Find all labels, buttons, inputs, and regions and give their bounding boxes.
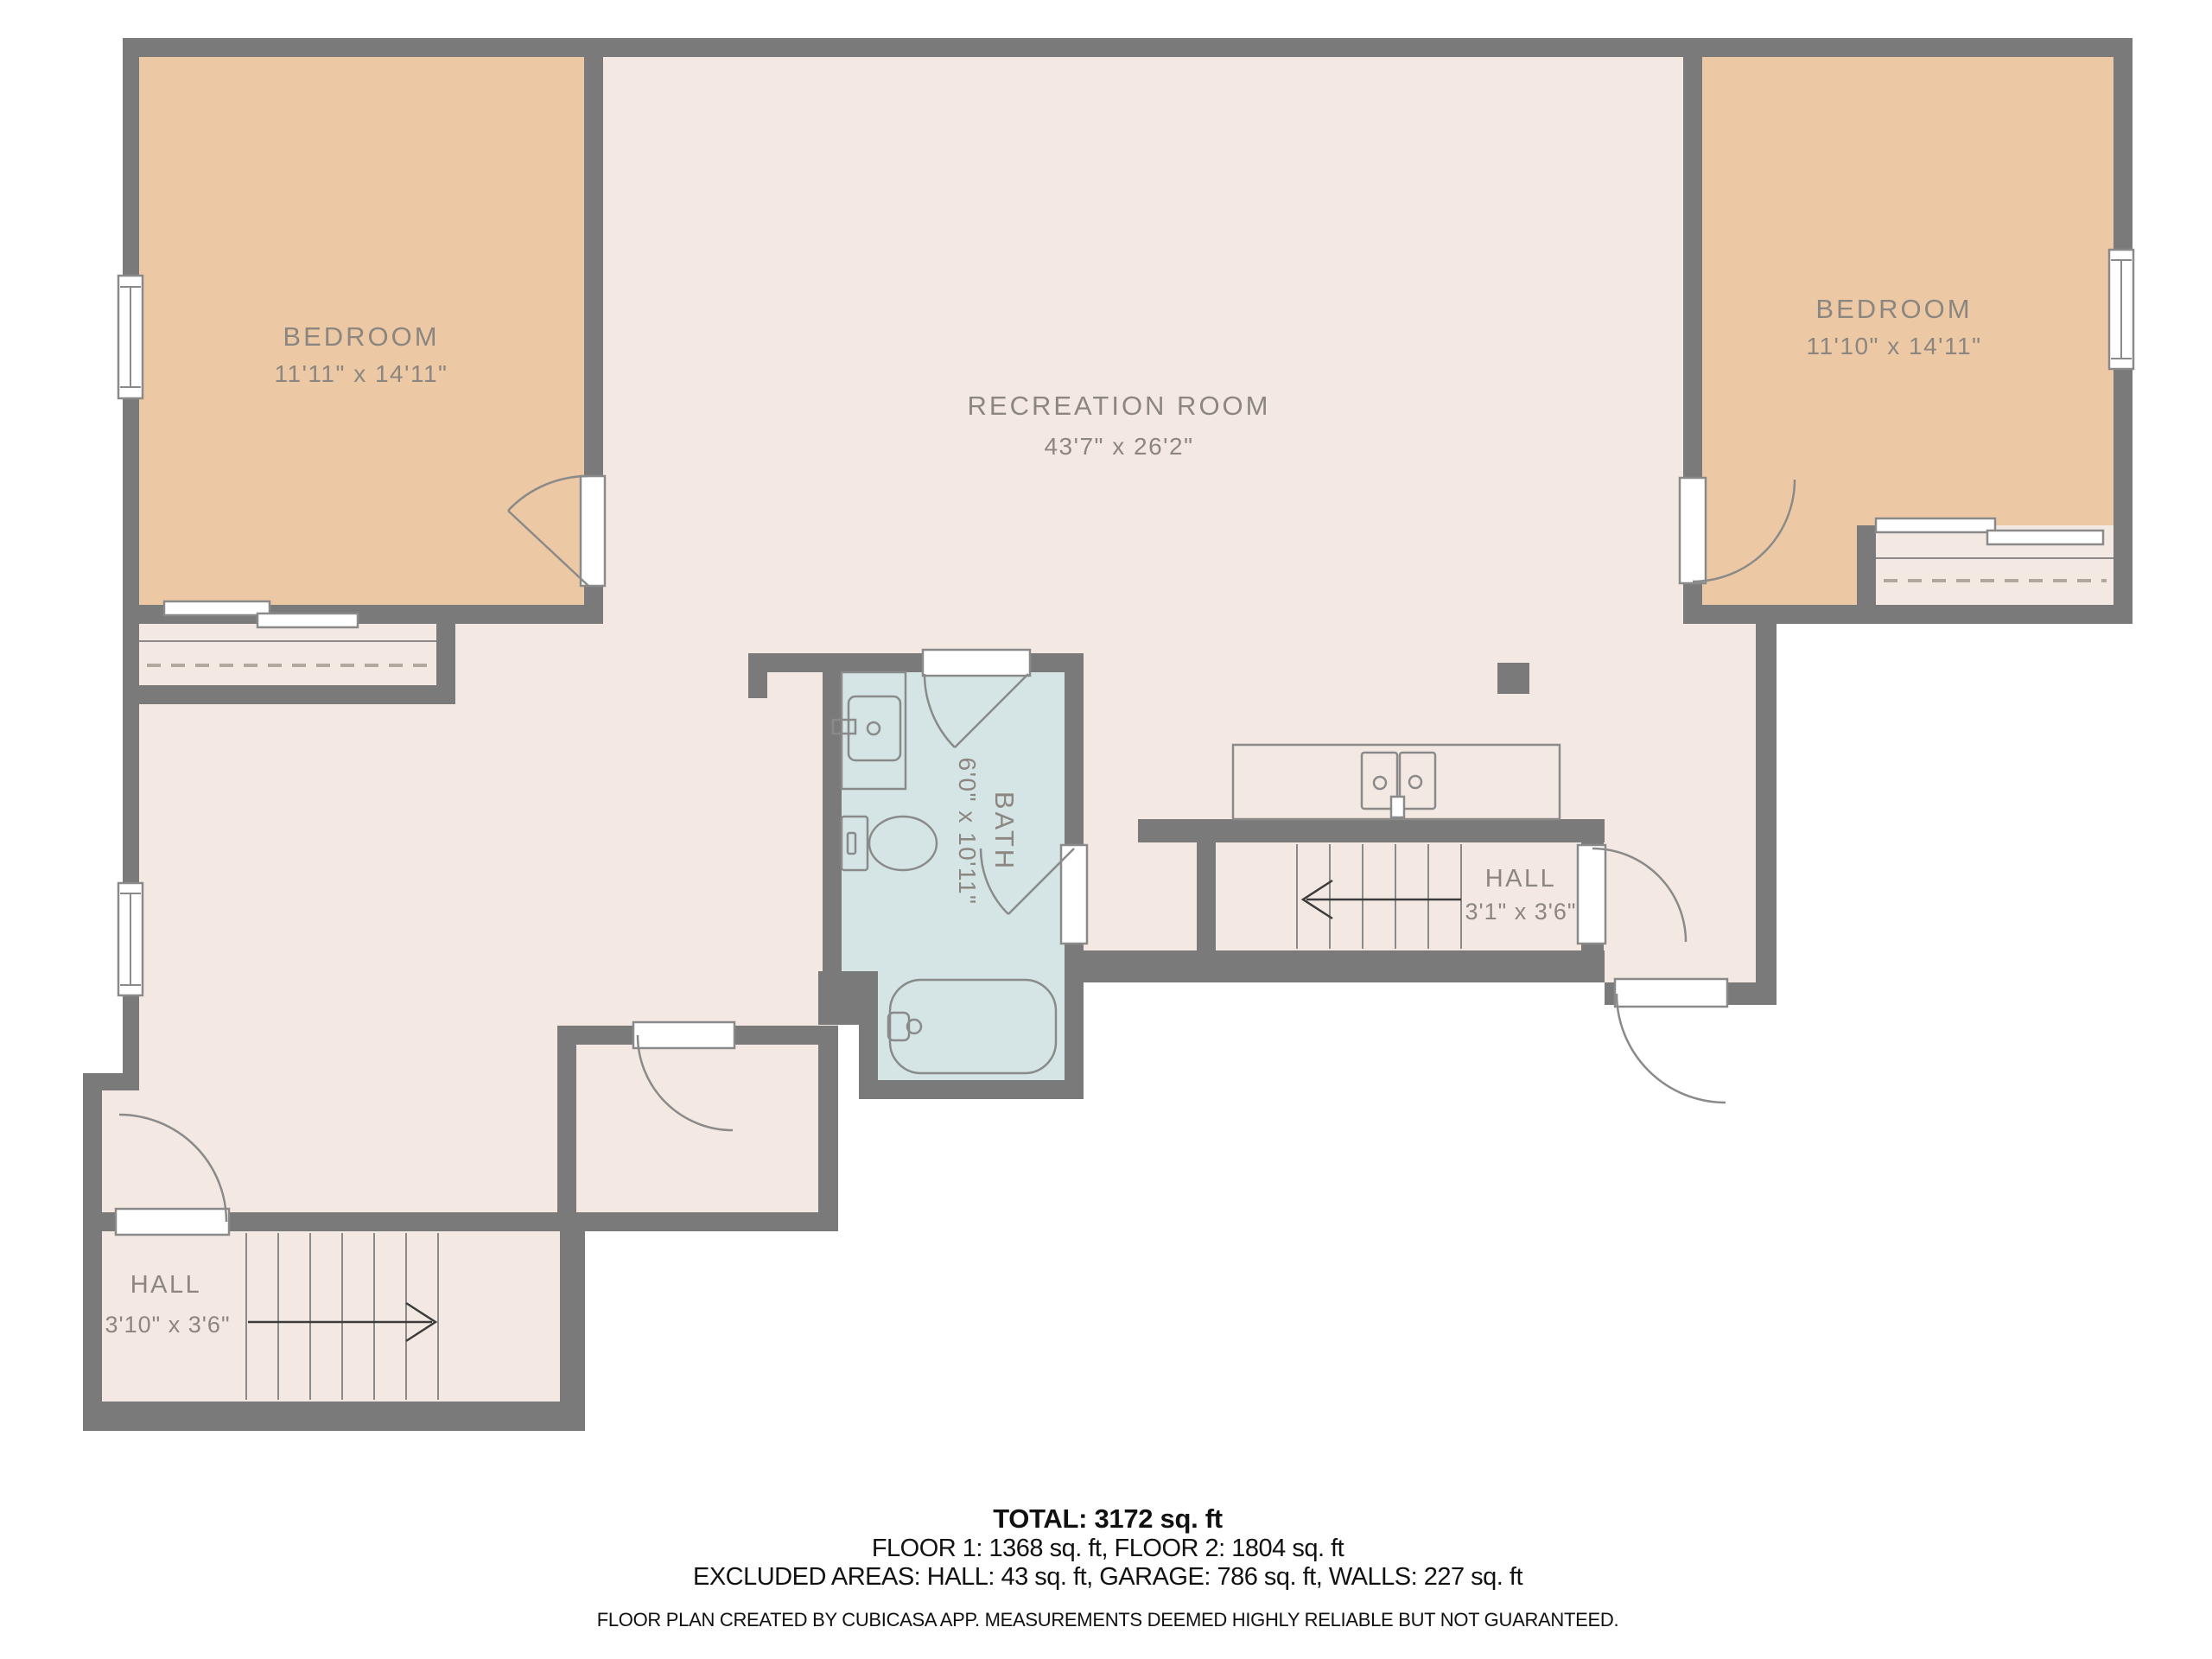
- sliding-door-panel: [1876, 518, 1995, 532]
- bath-tub-area-floor: [878, 971, 1065, 1080]
- excluded-areas-text: EXCLUDED AREAS: HALL: 43 sq. ft, GARAGE:…: [693, 1563, 1522, 1591]
- window: [118, 883, 143, 995]
- door-leaf: [633, 1022, 734, 1048]
- wall-segment: [1683, 57, 1702, 478]
- summary: TOTAL: 3172 sq. ft FLOOR 1: 1368 sq. ft,…: [597, 1503, 1619, 1630]
- disclaimer-text: FLOOR PLAN CREATED BY CUBICASA APP. MEAS…: [597, 1609, 1619, 1630]
- door-leaf: [1680, 478, 1706, 583]
- door-leaf: [923, 650, 1030, 676]
- room-dims-bath: 6'0" x 10'11": [954, 758, 981, 906]
- column-post: [1497, 663, 1529, 694]
- wall-segment: [818, 1026, 838, 1231]
- wall-segment: [748, 672, 767, 698]
- wall-segment: [1683, 583, 1702, 605]
- room-dims-recreation: 43'7" x 26'2": [1044, 433, 1193, 460]
- sliding-door-panel: [164, 601, 270, 615]
- wall-segment: [584, 586, 603, 605]
- wall-segment: [748, 653, 823, 672]
- wall-segment: [83, 1073, 139, 1090]
- room-dims-bedroom-right: 11'10" x 14'11": [1806, 333, 1981, 359]
- wall-segment: [83, 1402, 585, 1431]
- window: [2109, 250, 2133, 369]
- wall-segment: [1138, 819, 1605, 842]
- wall-segment: [818, 971, 878, 1025]
- room-label-bath: BATH: [989, 791, 1020, 871]
- door-leaf: [581, 476, 605, 586]
- wall-segment: [557, 1026, 576, 1231]
- wall-segment: [823, 653, 842, 990]
- door-leaf: [1061, 845, 1087, 944]
- door-arc: [1617, 994, 1726, 1103]
- wall-segment: [1197, 842, 1216, 950]
- door-leaf: [1578, 845, 1605, 944]
- room-label-hall-upper: HALL: [1485, 865, 1557, 893]
- bath-floor: [842, 672, 1065, 990]
- wall-segment: [1756, 624, 1777, 1005]
- wall-segment: [83, 1073, 102, 1431]
- total-area-text: TOTAL: 3172 sq. ft: [993, 1503, 1223, 1534]
- floor-areas-text: FLOOR 1: 1368 sq. ft, FLOOR 2: 1804 sq. …: [872, 1535, 1344, 1562]
- window: [118, 276, 143, 398]
- wall-segment: [123, 685, 455, 704]
- wall-segment: [560, 1231, 585, 1431]
- room-label-recreation: RECREATION ROOM: [968, 391, 1271, 421]
- door-leaf: [1615, 979, 1727, 1007]
- sink-faucet: [1391, 797, 1404, 817]
- door-leaf: [116, 1209, 229, 1235]
- wall-segment: [1084, 950, 1605, 982]
- room-dims-bedroom-left: 11'11" x 14'11": [275, 360, 448, 387]
- wall-segment: [1857, 525, 1876, 605]
- room-label-hall-lower: HALL: [130, 1271, 202, 1299]
- sliding-door-panel: [257, 613, 358, 627]
- floor-plan-canvas: BEDROOM 11'11" x 14'11" RECREATION ROOM …: [0, 0, 2212, 1659]
- room-label-bedroom-right: BEDROOM: [1815, 294, 1972, 324]
- wall-segment: [584, 57, 603, 476]
- room-label-bedroom-left: BEDROOM: [283, 321, 439, 352]
- wall-segment: [859, 1080, 1084, 1099]
- sliding-door-panel: [1987, 531, 2103, 544]
- room-dims-hall-lower: 3'10" x 3'6": [105, 1312, 230, 1338]
- wall-segment: [1683, 605, 2133, 624]
- wall-segment: [123, 38, 2133, 57]
- room-dims-hall-upper: 3'1" x 3'6": [1465, 899, 1576, 925]
- floor-plan-page: BEDROOM 11'11" x 14'11" RECREATION ROOM …: [0, 0, 2212, 1659]
